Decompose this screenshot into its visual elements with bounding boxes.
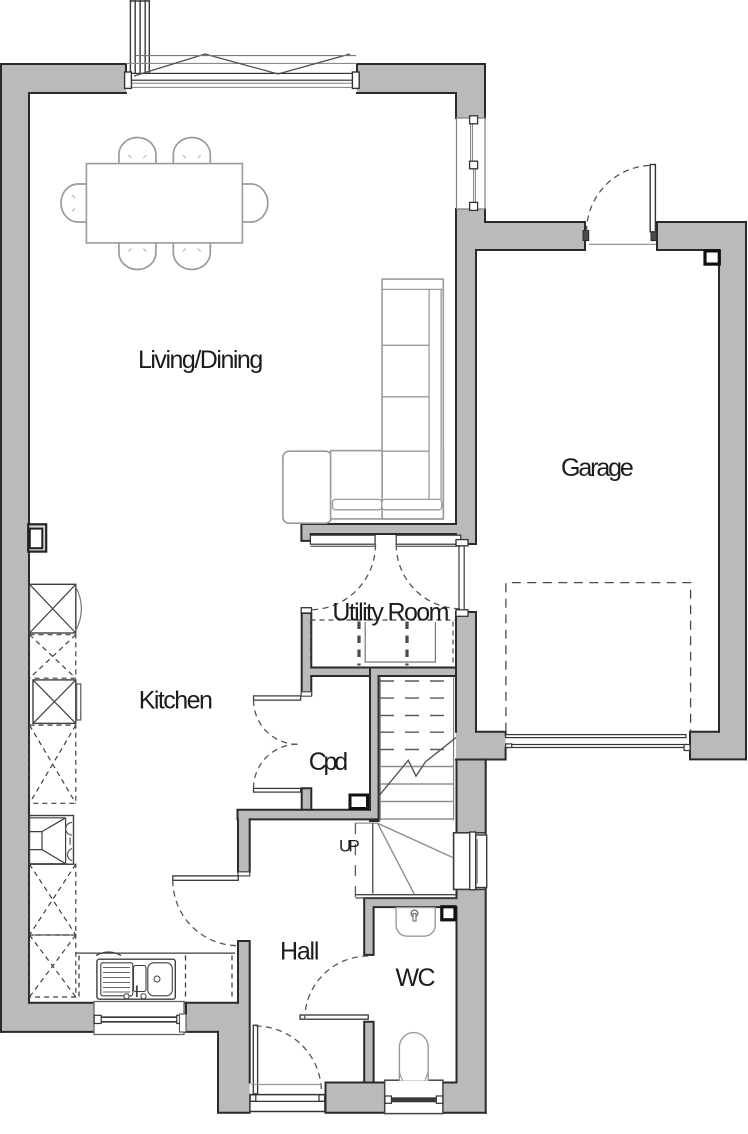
- svg-text:Kitchen: Kitchen: [139, 687, 213, 715]
- svg-text:Garage: Garage: [561, 454, 634, 482]
- svg-text:Utility Room: Utility Room: [332, 599, 449, 627]
- svg-text:WC: WC: [396, 964, 436, 992]
- svg-text:Living/Dining: Living/Dining: [138, 346, 263, 374]
- svg-text:Cpd: Cpd: [309, 748, 348, 776]
- svg-text:UP: UP: [339, 837, 360, 856]
- svg-text:Hall: Hall: [280, 938, 319, 966]
